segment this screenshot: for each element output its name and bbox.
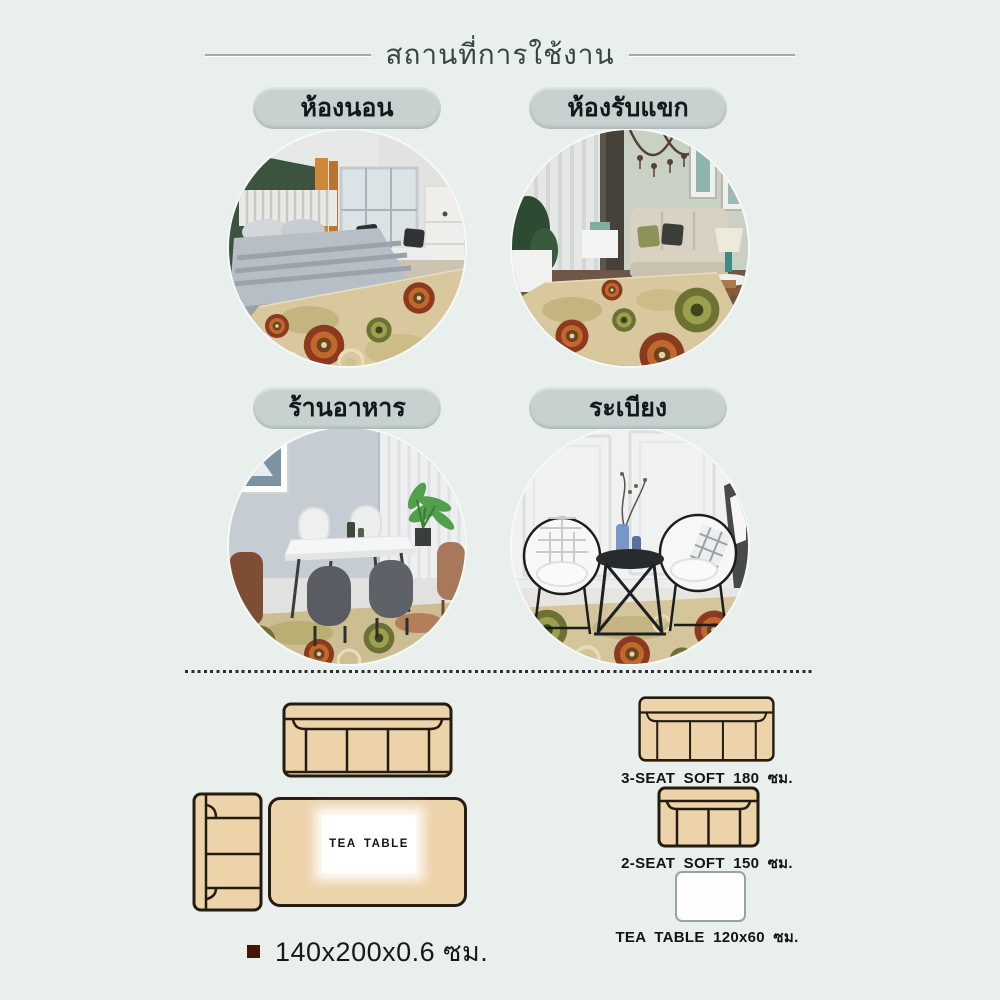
balcony-scene-illustration xyxy=(512,428,748,664)
usage-label-balcony-text: ระเบียง xyxy=(589,388,667,428)
dining-room-scene-illustration xyxy=(229,428,465,664)
bedroom-scene-illustration xyxy=(229,130,465,366)
header-rule-left xyxy=(205,54,371,56)
page-title: สถานที่การใช้งาน xyxy=(385,33,614,77)
section-header: สถานที่การใช้งาน xyxy=(205,33,795,77)
usage-label-living-room: ห้องรับแขก xyxy=(529,87,727,129)
balcony-photo xyxy=(512,428,748,664)
square-bullet-icon xyxy=(247,945,260,958)
living-room-photo xyxy=(512,130,748,366)
sofa-2-seat-side-view-icon xyxy=(192,792,263,912)
legend-tea-table-icon xyxy=(675,871,746,922)
usage-label-living-room-text: ห้องรับแขก xyxy=(567,88,688,128)
legend-label-tea-table: TEA TABLE 120x60 ซม. xyxy=(607,925,807,949)
rug-floor-plan: TEA TABLE xyxy=(268,797,467,907)
usage-label-balcony: ระเบียง xyxy=(529,387,727,429)
dotted-divider xyxy=(185,670,815,673)
header-rule-right xyxy=(629,54,795,56)
product-usage-infographic: สถานที่การใช้งาน ห้องนอน ห้องรับแขก ร้าน… xyxy=(0,0,1000,1000)
dining-room-photo xyxy=(229,428,465,664)
tea-table-area: TEA TABLE xyxy=(322,815,416,873)
rug-size-row: 140x200x0.6 ซม. xyxy=(247,930,488,973)
usage-label-dining-room-text: ร้านอาหาร xyxy=(288,388,406,428)
bedroom-photo xyxy=(229,130,465,366)
sofa-3-seat-top-view-icon xyxy=(282,702,453,778)
usage-label-bedroom-text: ห้องนอน xyxy=(301,88,394,128)
legend-sofa-2-seat-icon xyxy=(657,786,760,848)
usage-label-dining-room: ร้านอาหาร xyxy=(253,387,441,429)
tea-table-area-label: TEA TABLE xyxy=(329,838,409,850)
legend-sofa-3-seat-icon xyxy=(638,696,775,762)
rug-size-label: 140x200x0.6 ซม. xyxy=(275,930,488,973)
usage-label-bedroom: ห้องนอน xyxy=(253,87,441,129)
living-room-scene-illustration xyxy=(512,130,748,366)
